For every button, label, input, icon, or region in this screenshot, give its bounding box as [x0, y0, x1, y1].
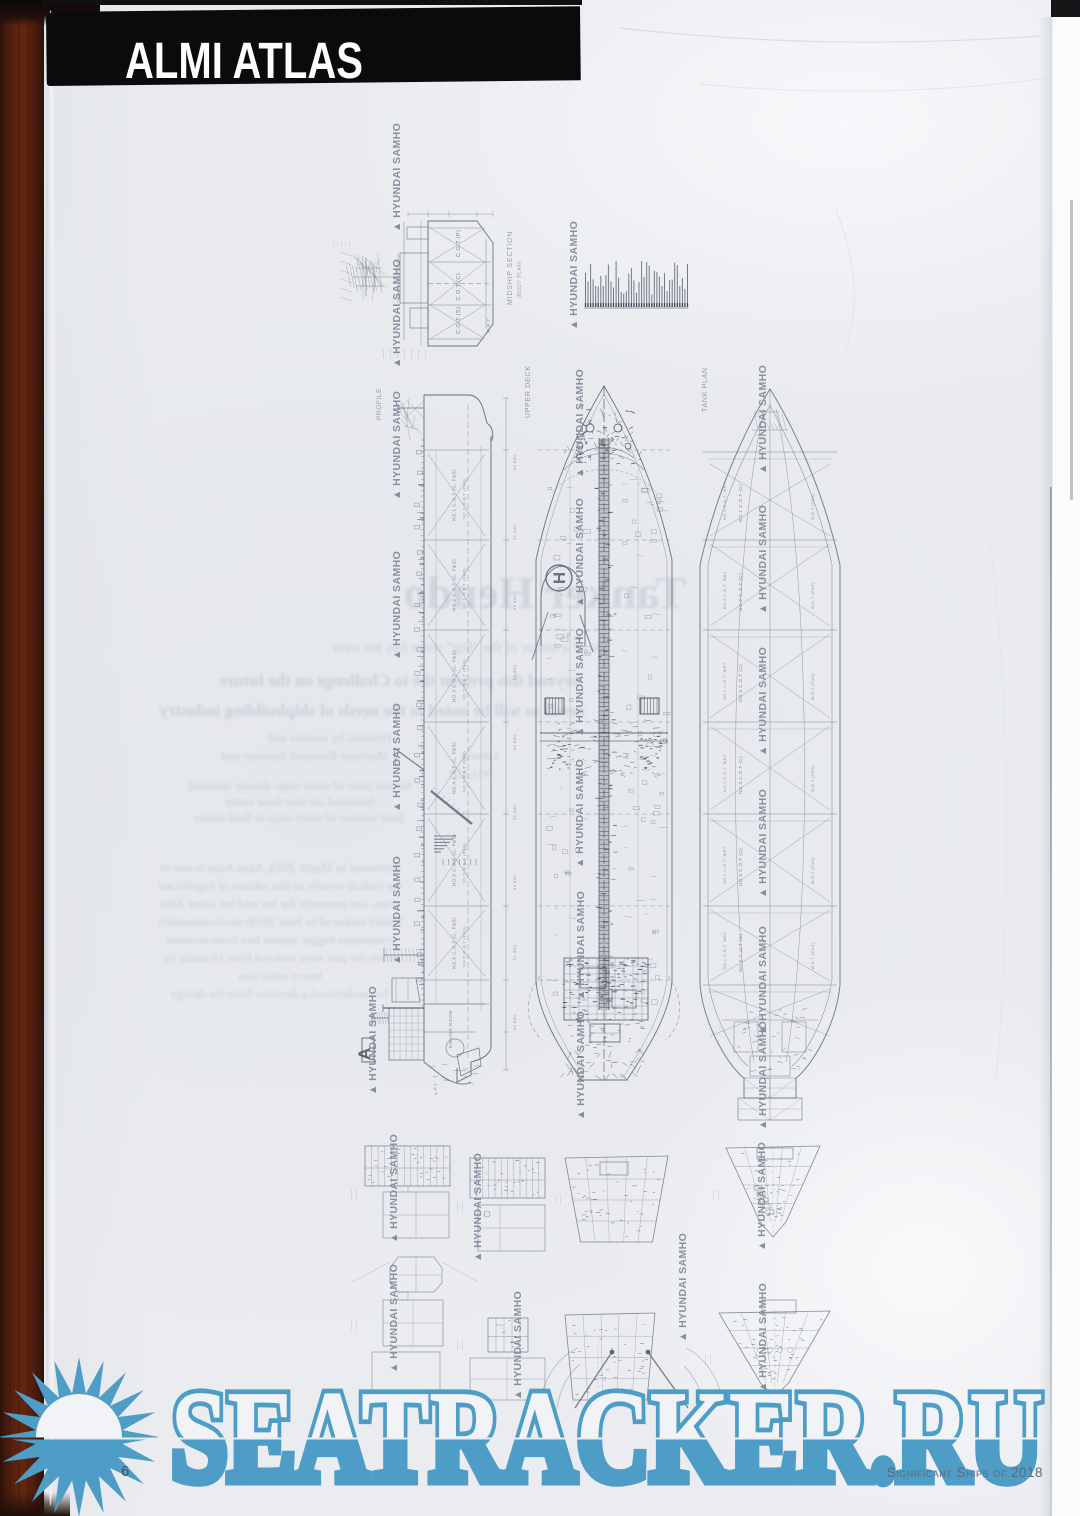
- svg-text:W.B.T (P&S): W.B.T (P&S): [811, 673, 815, 700]
- svg-text:▲ HYUNDAI SAMHO: ▲ HYUNDAI SAMHO: [568, 221, 580, 330]
- svg-text:6: 6: [121, 1463, 129, 1480]
- svg-text:credentials bigger almost free: credentials bigger almost free from mome…: [165, 932, 394, 947]
- svg-text:51 800: 51 800: [512, 944, 517, 960]
- svg-text:—–—: —–—: [461, 1201, 465, 1212]
- svg-text:—–—: —–—: [711, 1189, 715, 1200]
- svg-text:—–—: —–—: [559, 1194, 563, 1205]
- svg-text:Hyundai by owners and: Hyundai by owners and: [268, 730, 392, 745]
- svg-text:▲ HYUNDAI SAMHO: ▲ HYUNDAI SAMHO: [367, 986, 379, 1095]
- svg-text:TANK PLAN: TANK PLAN: [702, 367, 709, 412]
- svg-text:––: ––: [347, 241, 351, 246]
- svg-text:▲ HYUNDAI SAMHO: ▲ HYUNDAI SAMHO: [756, 1142, 768, 1251]
- svg-text:MIDSHIP SECTION: MIDSHIP SECTION: [507, 231, 514, 305]
- svg-text:W.B.T: W.B.T: [486, 318, 491, 333]
- svg-text:▲ HYUNDAI SAMHO: ▲ HYUNDAI SAMHO: [472, 1153, 484, 1262]
- svg-text:▲ HYUNDAI SAMHO: ▲ HYUNDAI SAMHO: [391, 123, 403, 232]
- svg-text:—–—: —–—: [355, 1189, 359, 1200]
- svg-text:▲ HYUNDAI SAMHO: ▲ HYUNDAI SAMHO: [575, 1011, 587, 1120]
- svg-text:when the pair were ordered fro: when the pair were ordered from Hyundai …: [162, 950, 397, 965]
- svg-text:C.O.T.(P): C.O.T.(P): [456, 230, 462, 257]
- svg-text:—–—: —–—: [717, 1189, 721, 1200]
- svg-text:W.B.T (P&S): W.B.T (P&S): [811, 582, 815, 609]
- svg-text:——: ——: [422, 349, 427, 358]
- svg-text:▲ HYUNDAI SAMHO: ▲ HYUNDAI SAMHO: [574, 498, 586, 607]
- svg-text:51 800: 51 800: [512, 594, 517, 610]
- svg-text:51 800: 51 800: [512, 734, 517, 750]
- svg-text:—–—: —–—: [355, 1319, 359, 1330]
- svg-text:——: ——: [408, 349, 413, 358]
- svg-text:(BODY PLAN): (BODY PLAN): [517, 261, 523, 298]
- svg-text:▲ HYUNDAI SAMHO: ▲ HYUNDAI SAMHO: [574, 369, 586, 478]
- svg-text:NO.2 W.B.T (P&S): NO.2 W.B.T (P&S): [462, 926, 467, 967]
- svg-text:——: ——: [415, 349, 420, 358]
- svg-text:W.B.T (P&S): W.B.T (P&S): [811, 942, 815, 969]
- svg-text:H: H: [550, 572, 569, 584]
- svg-text:NO.1 C.O.T (C): NO.1 C.O.T (C): [738, 484, 743, 522]
- svg-text:NO.2 W.B.T (P&S): NO.2 W.B.T (P&S): [462, 843, 467, 884]
- svg-text:—–—: —–—: [461, 1339, 465, 1350]
- svg-text:NO.5 C.O.T (C): NO.5 C.O.T (C): [738, 848, 743, 886]
- svg-text:—–—: —–—: [703, 1354, 707, 1365]
- svg-text:NO.2 W.B.T (P&S): NO.2 W.B.T (P&S): [462, 751, 467, 792]
- svg-text:▲ HYUNDAI SAMHO: ▲ HYUNDAI SAMHO: [391, 703, 403, 812]
- svg-text:So modernised a decision from: So modernised a decision from the design: [170, 986, 389, 1001]
- svg-text:NO.2 C.O.T. WBT: NO.2 C.O.T. WBT: [723, 846, 727, 884]
- svg-text:▲ HYUNDAI SAMHO: ▲ HYUNDAI SAMHO: [575, 891, 587, 1000]
- svg-text:▲ HYUNDAI SAMHO: ▲ HYUNDAI SAMHO: [757, 1021, 769, 1130]
- svg-text:——: ——: [380, 349, 385, 358]
- svg-text:NO.4 C.O.T (C): NO.4 C.O.T (C): [738, 756, 743, 794]
- svg-text:NO.2 C.O.T (C): NO.2 C.O.T (C): [738, 573, 743, 611]
- svg-text:▲ HYUNDAI SAMHO: ▲ HYUNDAI SAMHO: [574, 759, 586, 868]
- svg-text:Titan's tanker of in June 2018: Titan's tanker of in June 2018) environm…: [156, 914, 403, 929]
- svg-text:NO.2 C.O.T. WBT: NO.2 C.O.T. WBT: [723, 932, 727, 970]
- svg-text:UPPER DECK: UPPER DECK: [525, 365, 532, 418]
- svg-text:▲ HYUNDAI SAMHO: ▲ HYUNDAI SAMHO: [757, 926, 769, 1035]
- svg-text:—–—: —–—: [349, 1189, 353, 1200]
- svg-text:NO.6 C.O.T (C): NO.6 C.O.T (C): [738, 933, 743, 971]
- svg-text:▲ HYUNDAI SAMHO: ▲ HYUNDAI SAMHO: [391, 391, 403, 500]
- svg-text:NO.6 C.O.T (C, P&S): NO.6 C.O.T (C, P&S): [452, 917, 457, 969]
- svg-text:—–—: —–—: [553, 1194, 557, 1205]
- svg-text:▲ HYUNDAI SAMHO: ▲ HYUNDAI SAMHO: [757, 505, 769, 614]
- svg-text:—–—: —–—: [455, 1201, 459, 1212]
- svg-text:the radical vessels in this ed: the radical vessels in this edition of S…: [158, 878, 402, 893]
- svg-text:NO.1 C.O.T (C, P&S): NO.1 C.O.T (C, P&S): [452, 469, 457, 521]
- svg-text:51 800: 51 800: [512, 874, 517, 890]
- svg-text:▲ HYUNDAI SAMHO: ▲ HYUNDAI SAMHO: [574, 628, 586, 737]
- svg-text:NO.2 C.O.T. WBT: NO.2 C.O.T. WBT: [723, 571, 727, 609]
- svg-text:NO.3 C.O.T (C): NO.3 C.O.T (C): [738, 664, 743, 702]
- svg-text:▲ HYUNDAI SAMHO: ▲ HYUNDAI SAMHO: [391, 551, 403, 660]
- svg-text:▲ HYUNDAI SAMHO: ▲ HYUNDAI SAMHO: [757, 365, 769, 474]
- svg-text:NO.2 W.B.T (P&S): NO.2 W.B.T (P&S): [462, 478, 467, 519]
- svg-text:W.B.T (P&S): W.B.T (P&S): [811, 765, 815, 792]
- svg-text:ENGINE ROOM: ENGINE ROOM: [448, 1010, 453, 1048]
- svg-text:NO.2 C.O.T. WBT: NO.2 C.O.T. WBT: [723, 754, 727, 792]
- svg-text:heavy reduction: heavy reduction: [238, 968, 322, 983]
- svg-text:51 800: 51 800: [512, 664, 517, 680]
- svg-text:—–—: —–—: [349, 1319, 353, 1330]
- svg-text:Liberia: Liberia: [461, 748, 499, 763]
- svg-text:51 800: 51 800: [512, 1014, 517, 1030]
- svg-text:NO.3 C.O.T (C, P&S): NO.3 C.O.T (C, P&S): [452, 650, 457, 702]
- svg-text:A.P.T: A.P.T: [433, 1083, 438, 1095]
- svg-text:needs as will be noted to the: needs as will be noted to the needs of s…: [158, 701, 585, 720]
- svg-text:Delivered in March 2018, Almi: Delivered in March 2018, Almi Atlas is o…: [159, 860, 401, 875]
- svg-text:▲ HYUNDAI SAMHO: ▲ HYUNDAI SAMHO: [391, 856, 403, 965]
- svg-text:51 800: 51 800: [512, 454, 517, 470]
- svg-text:▲ HYUNDAI SAMHO: ▲ HYUNDAI SAMHO: [757, 647, 769, 756]
- svg-text:W.B.T (P&S): W.B.T (P&S): [811, 493, 815, 520]
- svg-text:Tanker Hendo: Tanker Hendo: [404, 567, 687, 618]
- svg-text:NO.2 W.B.T (P&S): NO.2 W.B.T (P&S): [462, 568, 467, 609]
- svg-text:C.O.T.(S): C.O.T.(S): [456, 307, 462, 334]
- svg-text:▲ HYUNDAI SAMHO: ▲ HYUNDAI SAMHO: [757, 789, 769, 898]
- svg-text:beyond this present the to Cha: beyond this present the to Challenge on …: [219, 671, 582, 690]
- svg-text:NO.4 C.O.T (C, P&S): NO.4 C.O.T (C, P&S): [452, 742, 457, 794]
- svg-text:Maritime Research Institute an: Maritime Research Institute and: [221, 748, 389, 763]
- svg-text:NO.2 C.O.T (C, P&S): NO.2 C.O.T (C, P&S): [452, 559, 457, 611]
- svg-text:furnished are also those entir: furnished are also those entire: [225, 795, 375, 809]
- svg-text:ships, last presently for her: ships, last presently for her and her si…: [158, 896, 401, 911]
- svg-text:list of a tanker of the “big”: list of a tanker of the “big” sense lies…: [333, 640, 608, 656]
- svg-text:W.B.T (P&S): W.B.T (P&S): [811, 857, 815, 884]
- svg-text:▲ HYUNDAI SAMHO: ▲ HYUNDAI SAMHO: [677, 1233, 689, 1342]
- svg-text:51 800: 51 800: [512, 524, 517, 540]
- svg-text:51 800: 51 800: [512, 804, 517, 820]
- svg-text:▲ HYUNDAI SAMHO: ▲ HYUNDAI SAMHO: [388, 1134, 400, 1243]
- svg-text:—–—: —–—: [455, 1339, 459, 1350]
- svg-text:Significant Ships of 2018: Significant Ships of 2018: [887, 1465, 1043, 1480]
- svg-text:for this latter of some ships: for this latter of some ships already ob…: [188, 779, 411, 793]
- svg-text:PROFILE: PROFILE: [376, 388, 383, 420]
- svg-text:▲ HYUNDAI SAMHO: ▲ HYUNDAI SAMHO: [388, 1264, 400, 1373]
- svg-text:—–—: —–—: [709, 1354, 713, 1365]
- svg-text:Total number of sister ships i: Total number of sister ships in final or…: [194, 811, 406, 825]
- svg-text:NO.2 W.B.T (P&S): NO.2 W.B.T (P&S): [462, 659, 467, 700]
- svg-text:C.O.T.(C): C.O.T.(C): [456, 273, 462, 301]
- svg-text:NO.2 C.O.T. WBT: NO.2 C.O.T. WBT: [723, 482, 727, 520]
- svg-text:▲ HYUNDAI SAMHO: ▲ HYUNDAI SAMHO: [391, 259, 403, 368]
- svg-text:NO.2 C.O.T. WBT: NO.2 C.O.T. WBT: [723, 662, 727, 700]
